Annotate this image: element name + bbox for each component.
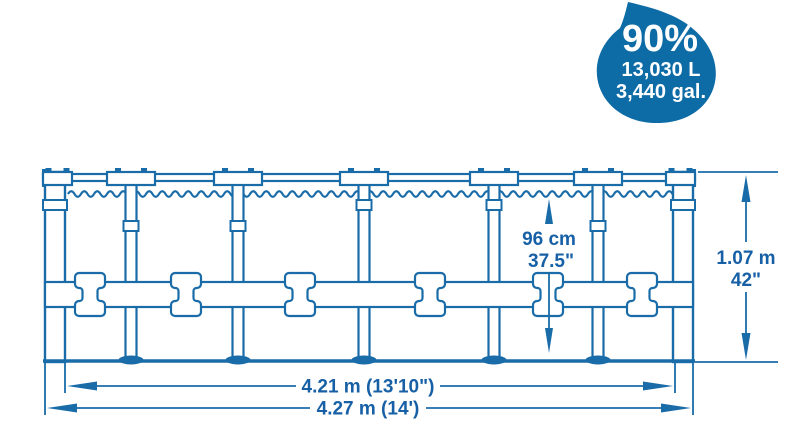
leg-foot	[226, 356, 251, 365]
leg-foot	[482, 356, 507, 365]
badge-gallons: 3,440 gal.	[616, 81, 706, 103]
arrow-left-icon	[67, 382, 97, 391]
screw-icon	[46, 168, 52, 173]
diagram-canvas: 1.07 m 42" 96 cm 37.5" 4.21 m (13'10") 4…	[0, 0, 800, 428]
screw-icon	[478, 168, 484, 173]
screw-icon	[582, 168, 588, 173]
screw-icon	[374, 168, 380, 173]
water-height-imperial: 37.5"	[528, 251, 574, 272]
leg-collar	[671, 200, 695, 210]
screw-icon	[141, 168, 147, 173]
arrow-down-icon	[545, 328, 553, 353]
vertical-leg	[593, 184, 604, 358]
capacity-badge: 90% 13,030 L 3,440 gal.	[597, 2, 716, 123]
ground	[43, 356, 695, 365]
top-rail-joints	[43, 168, 695, 185]
arrow-right-icon	[643, 382, 673, 391]
leg-foot	[119, 356, 144, 365]
pool-legs	[43, 172, 695, 362]
leg-collar	[124, 221, 139, 231]
badge-percent: 90%	[622, 18, 698, 60]
rail-joint	[214, 168, 262, 185]
outer-diameter-label: 4.27 m (14')	[317, 399, 420, 420]
leg-collar	[43, 200, 67, 210]
screw-icon	[504, 168, 510, 173]
middle-band	[45, 282, 693, 307]
water-height-metric: 96 cm	[522, 229, 576, 250]
screw-icon	[608, 168, 614, 173]
dim-water-height: 96 cm 37.5"	[522, 199, 576, 353]
arrow-right-icon	[661, 404, 691, 413]
vertical-leg	[126, 184, 137, 358]
screw-icon	[669, 168, 675, 173]
screw-icon	[64, 168, 70, 173]
rail-joint	[574, 168, 622, 185]
wall-height-imperial: 42"	[731, 270, 761, 291]
screw-icon	[348, 168, 354, 173]
rail-joint	[666, 168, 695, 185]
rail-joint	[107, 168, 155, 185]
leg-collar	[487, 200, 502, 210]
wall-height-metric: 1.07 m	[716, 248, 775, 269]
leg-collar	[357, 200, 372, 210]
screw-icon	[115, 168, 121, 173]
screw-icon	[222, 168, 228, 173]
pool-dimensions-diagram: 1.07 m 42" 96 cm 37.5" 4.21 m (13'10") 4…	[0, 0, 800, 428]
arrow-up-icon	[742, 175, 751, 202]
vertical-leg	[233, 184, 244, 358]
screw-icon	[687, 168, 693, 173]
rail-joint	[340, 168, 388, 185]
rail-joint	[470, 168, 518, 185]
dim-inner-diameter: 4.21 m (13'10")	[65, 363, 675, 398]
leg-foot	[352, 356, 377, 365]
leg-collar	[591, 221, 606, 231]
screw-icon	[248, 168, 254, 173]
badge-liters: 13,030 L	[622, 59, 701, 81]
inner-diameter-label: 4.21 m (13'10")	[302, 377, 435, 398]
arrow-left-icon	[47, 404, 77, 413]
leg-foot	[586, 356, 611, 365]
rail-joint	[43, 168, 72, 185]
arrow-up-icon	[545, 199, 553, 224]
dim-wall-height: 1.07 m 42"	[695, 172, 778, 362]
arrow-down-icon	[742, 333, 751, 360]
leg-collar	[231, 221, 246, 231]
